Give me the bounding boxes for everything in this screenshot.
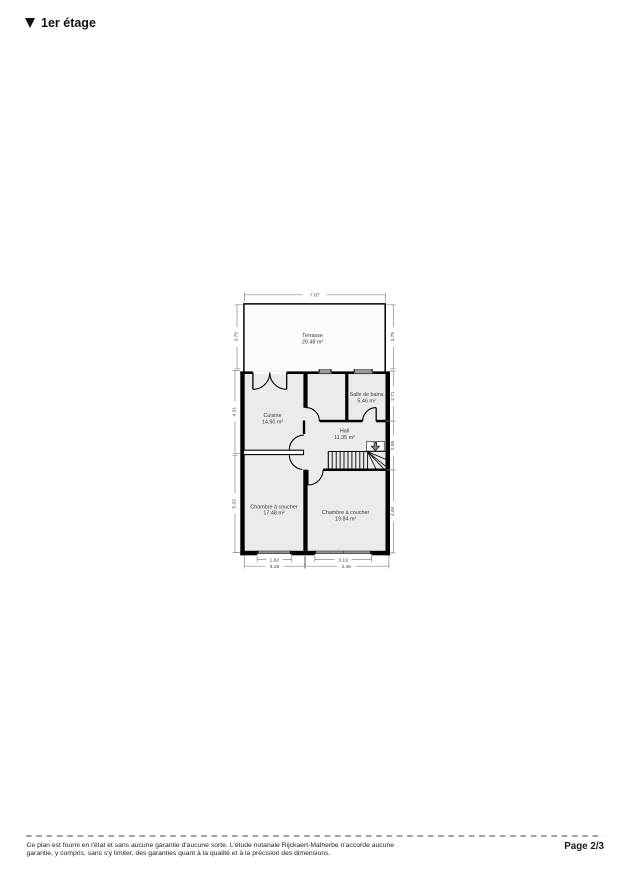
svg-text:Salle de bains: Salle de bains xyxy=(350,392,384,398)
svg-text:2.55: 2.55 xyxy=(390,440,396,450)
svg-text:14.90 m²: 14.90 m² xyxy=(262,419,283,425)
svg-text:4.31: 4.31 xyxy=(232,407,238,417)
svg-text:17.48 m²: 17.48 m² xyxy=(263,510,284,516)
svg-text:3.75: 3.75 xyxy=(234,332,240,342)
svg-text:11.35 m²: 11.35 m² xyxy=(334,435,355,441)
svg-text:4.46: 4.46 xyxy=(341,564,351,570)
svg-text:19.84 m²: 19.84 m² xyxy=(335,516,356,522)
svg-text:Cuisine: Cuisine xyxy=(264,413,282,419)
svg-text:Terrasse: Terrasse xyxy=(302,333,323,339)
svg-text:2.71: 2.71 xyxy=(390,391,396,401)
svg-text:3.19: 3.19 xyxy=(338,557,348,563)
svg-text:7.87: 7.87 xyxy=(310,293,320,299)
svg-text:5.46 m²: 5.46 m² xyxy=(357,399,375,405)
svg-text:29.48 m²: 29.48 m² xyxy=(302,340,323,346)
svg-text:4.45: 4.45 xyxy=(390,506,396,516)
svg-text:5.33: 5.33 xyxy=(232,499,238,509)
svg-text:1.82: 1.82 xyxy=(270,557,280,563)
svg-text:3.28: 3.28 xyxy=(270,564,280,570)
svg-text:Chambre à coucher: Chambre à coucher xyxy=(322,510,370,516)
svg-text:3.75: 3.75 xyxy=(390,332,396,342)
svg-text:Hall: Hall xyxy=(340,429,349,435)
